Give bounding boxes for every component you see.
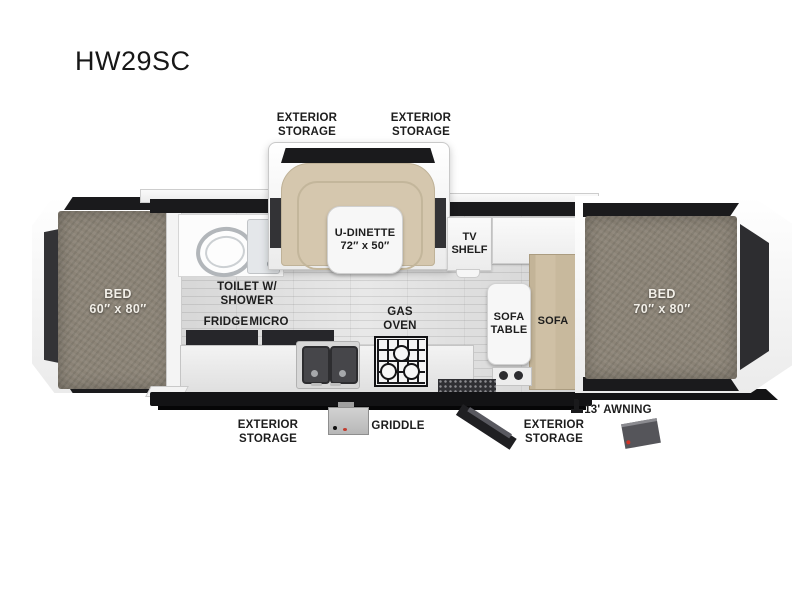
bed-left-label: BED 60″ x 80″ bbox=[72, 287, 164, 317]
dinette-right-window bbox=[435, 198, 446, 248]
tv-shelf: TV SHELF bbox=[447, 217, 492, 271]
bottom-rail-lip bbox=[158, 406, 586, 410]
tv-shelf-base bbox=[456, 269, 480, 278]
double-sink-icon bbox=[296, 341, 360, 389]
bed-right-label: BED 70″ x 80″ bbox=[618, 287, 706, 317]
gas-stove-icon bbox=[374, 336, 428, 387]
sofa: SOFA bbox=[529, 254, 577, 390]
top-rail-right bbox=[447, 202, 587, 216]
entry-door-open bbox=[456, 404, 517, 450]
right-bed-top-rail bbox=[583, 203, 739, 217]
gas-oven-label: GAS OVEN bbox=[374, 306, 426, 334]
bottom-bumper-rail bbox=[150, 392, 592, 406]
dinette-left-window bbox=[270, 198, 281, 248]
u-dinette-label: U-DINETTE 72″ x 50″ bbox=[335, 227, 395, 253]
sofa-label: SOFA bbox=[530, 315, 576, 328]
fridge-cabinet bbox=[186, 330, 258, 346]
toilet-shower-label: TOILET W/ SHOWER bbox=[200, 281, 294, 309]
model-title: HW29SC bbox=[75, 46, 191, 77]
exterior-storage-label-top-left: EXTERIOR STORAGE bbox=[274, 112, 340, 140]
floorplan-diagram: HW29SC U-DINETTE 72″ x 50″ bbox=[0, 0, 800, 600]
u-dinette-table: U-DINETTE 72″ x 50″ bbox=[327, 206, 403, 274]
awning-label: 13' AWNING bbox=[578, 404, 658, 418]
griddle-label: GRIDDLE bbox=[362, 420, 434, 434]
right-end-window bbox=[740, 224, 769, 370]
burner-box-icon bbox=[492, 367, 532, 386]
exterior-storage-label-top-right: EXTERIOR STORAGE bbox=[388, 112, 454, 140]
tv-shelf-label: TV SHELF bbox=[451, 231, 487, 257]
exterior-storage-label-bottom-right: EXTERIOR STORAGE bbox=[521, 419, 587, 447]
exterior-step-panel bbox=[621, 418, 661, 449]
dinette-top-window bbox=[281, 148, 435, 163]
exterior-storage-label-bottom-left: EXTERIOR STORAGE bbox=[235, 419, 301, 447]
right-bed-bottom-rail bbox=[583, 377, 739, 391]
sofa-table: SOFA TABLE bbox=[487, 283, 531, 365]
micro-label: MICRO bbox=[241, 316, 297, 330]
sofa-table-label: SOFA TABLE bbox=[491, 311, 528, 337]
